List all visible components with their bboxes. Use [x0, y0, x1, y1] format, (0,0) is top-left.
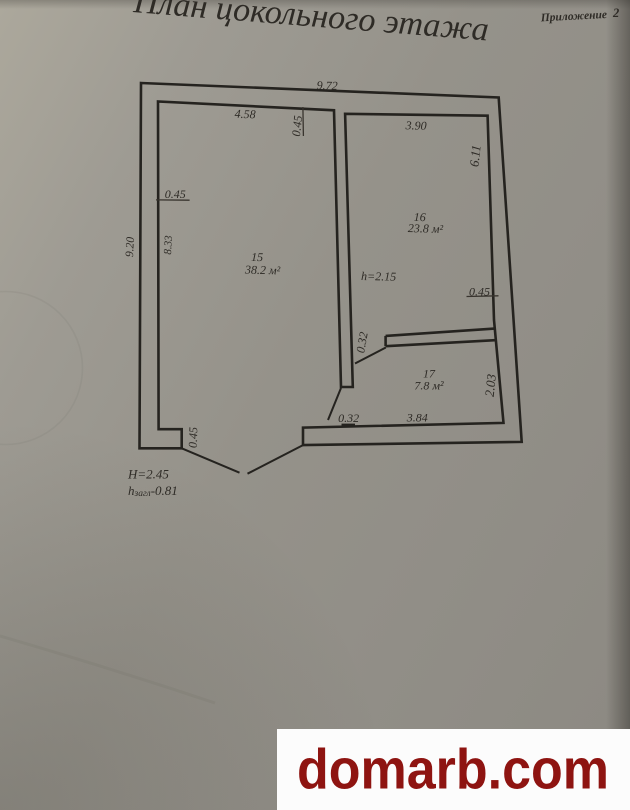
- svg-text:38.2 м²: 38.2 м²: [244, 263, 281, 278]
- svg-text:0.45: 0.45: [289, 115, 305, 137]
- svg-text:0.32: 0.32: [353, 331, 370, 354]
- svg-text:6.11: 6.11: [466, 144, 483, 167]
- svg-text:Приложение: Приложение: [540, 9, 608, 25]
- svg-text:3.84: 3.84: [406, 410, 428, 424]
- svg-text:3.90: 3.90: [404, 118, 426, 133]
- svg-text:2.03: 2.03: [482, 373, 499, 398]
- svg-text:h=2.15: h=2.15: [361, 269, 396, 284]
- svg-text:2: 2: [612, 6, 619, 20]
- svg-text:8.33: 8.33: [162, 235, 175, 255]
- svg-text:H=2.45: H=2.45: [127, 467, 169, 482]
- svg-text:План цокольного этажа: План цокольного этажа: [131, 0, 490, 49]
- svg-text:9.20: 9.20: [124, 236, 137, 257]
- svg-text:23.8 м²: 23.8 м²: [408, 221, 444, 236]
- svg-text:9.72: 9.72: [316, 78, 337, 93]
- svg-text:0.32: 0.32: [338, 411, 359, 425]
- svg-text:4.58: 4.58: [234, 107, 255, 122]
- svg-text:domarb.com: domarb.com: [297, 738, 609, 802]
- svg-text:0.45: 0.45: [469, 285, 490, 299]
- svg-text:hзагл-0.81: hзагл-0.81: [128, 483, 178, 499]
- svg-text:0.45: 0.45: [186, 427, 201, 448]
- svg-text:0.45: 0.45: [165, 187, 186, 201]
- svg-text:7.8 м²: 7.8 м²: [414, 379, 444, 393]
